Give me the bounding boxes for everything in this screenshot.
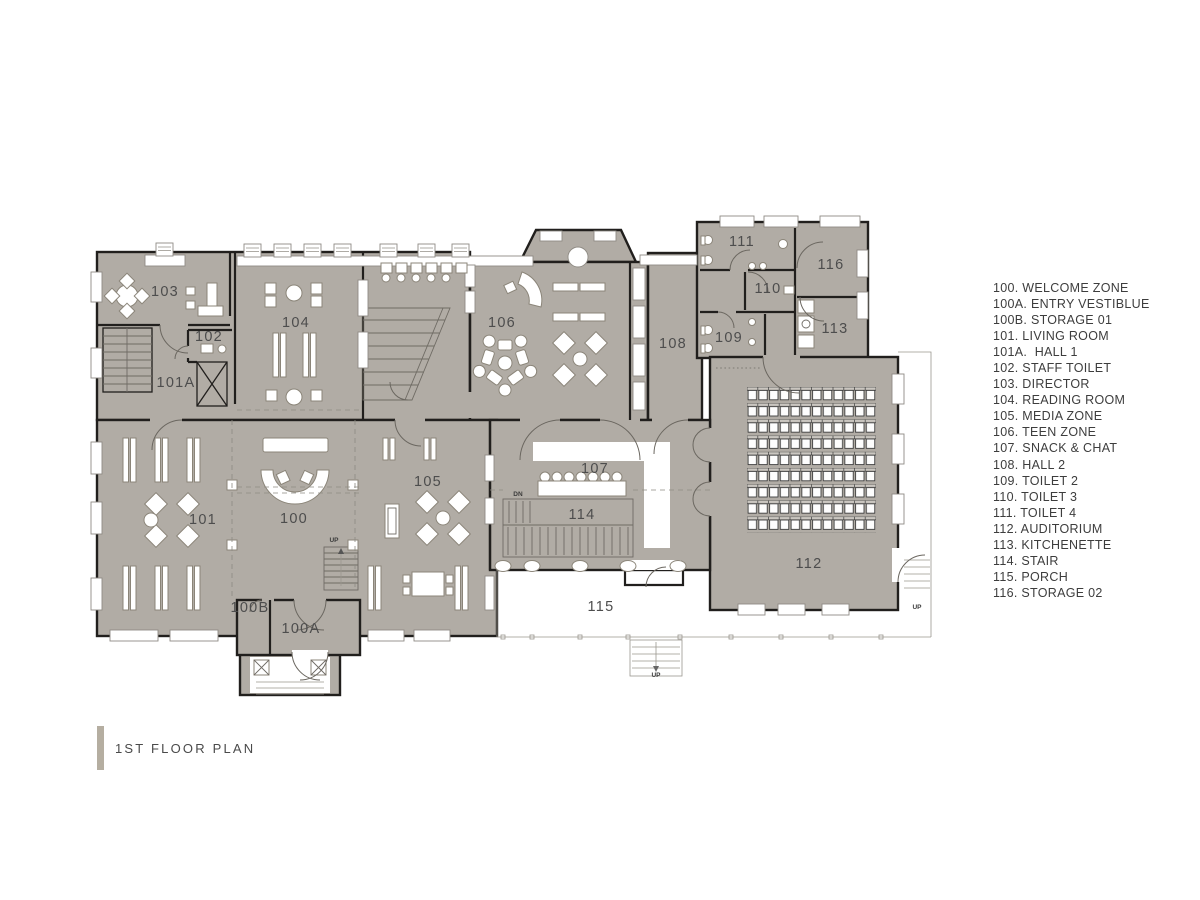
room-label-100A: 100A	[281, 621, 320, 637]
room-label-111: 111	[729, 234, 755, 250]
legend-item: 101. LIVING ROOM	[993, 328, 1150, 344]
room-legend: 100. WELCOME ZONE100A. ENTRY VESTIBLUE10…	[993, 280, 1150, 601]
room-label-100: 100	[280, 511, 308, 527]
legend-item: 112. AUDITORIUM	[993, 521, 1150, 537]
room-label-100B: 100B	[230, 600, 269, 616]
direction-label-up-porch-stair: UP	[651, 672, 661, 679]
legend-item: 108. HALL 2	[993, 457, 1150, 473]
room-label-109: 109	[715, 330, 743, 346]
legend-item: 114. STAIR	[993, 553, 1150, 569]
room-label-104: 104	[282, 315, 310, 331]
legend-item: 107. SNACK & CHAT	[993, 440, 1150, 456]
room-label-101: 101	[189, 512, 217, 528]
legend-item: 110. TOILET 3	[993, 489, 1150, 505]
legend-item: 104. READING ROOM	[993, 392, 1150, 408]
room-label-112: 112	[795, 556, 822, 572]
legend-item: 116. STORAGE 02	[993, 585, 1150, 601]
room-label-101A: 101A	[156, 375, 195, 391]
room-label-110: 110	[754, 281, 781, 297]
room-label-113: 113	[821, 321, 848, 337]
legend-item: 106. TEEN ZONE	[993, 424, 1150, 440]
legend-item: 102. STAFF TOILET	[993, 360, 1150, 376]
legend-item: 109. TOILET 2	[993, 473, 1150, 489]
legend-item: 115. PORCH	[993, 569, 1150, 585]
legend-item: 100. WELCOME ZONE	[993, 280, 1150, 296]
room-label-102: 102	[195, 329, 223, 345]
title-accent-bar	[97, 726, 104, 770]
legend-item: 103. DIRECTOR	[993, 376, 1150, 392]
legend-item: 100B. STORAGE 01	[993, 312, 1150, 328]
legend-item: 111. TOILET 4	[993, 505, 1150, 521]
legend-item: 105. MEDIA ZONE	[993, 408, 1150, 424]
direction-label-up-entry-stair: UP	[329, 537, 339, 544]
floor-plan-page: 103102101A104106108111116110113109112101…	[0, 0, 1200, 900]
room-label-108: 108	[659, 336, 687, 352]
title-block: 1ST FLOOR PLAN	[97, 726, 255, 770]
direction-label-dn-stair-114: DN	[513, 491, 523, 498]
kitchenette-counter	[798, 300, 814, 348]
room-label-105: 105	[414, 474, 442, 490]
legend-item: 113. KITCHENETTE	[993, 537, 1150, 553]
auditorium-seat-grid	[747, 387, 876, 533]
porch-stair	[630, 640, 682, 676]
room-label-106: 106	[488, 315, 516, 331]
legend-item: 101A. HALL 1	[993, 344, 1150, 360]
room-label-116: 116	[817, 257, 844, 273]
direction-label-up-side-stair: UP	[912, 604, 922, 611]
plan-title: 1ST FLOOR PLAN	[115, 741, 255, 756]
room-label-115: 115	[587, 599, 614, 615]
room-label-114: 114	[568, 507, 595, 523]
room-label-107: 107	[581, 461, 609, 477]
legend-item: 100A. ENTRY VESTIBLUE	[993, 296, 1150, 312]
room-label-103: 103	[151, 284, 179, 300]
